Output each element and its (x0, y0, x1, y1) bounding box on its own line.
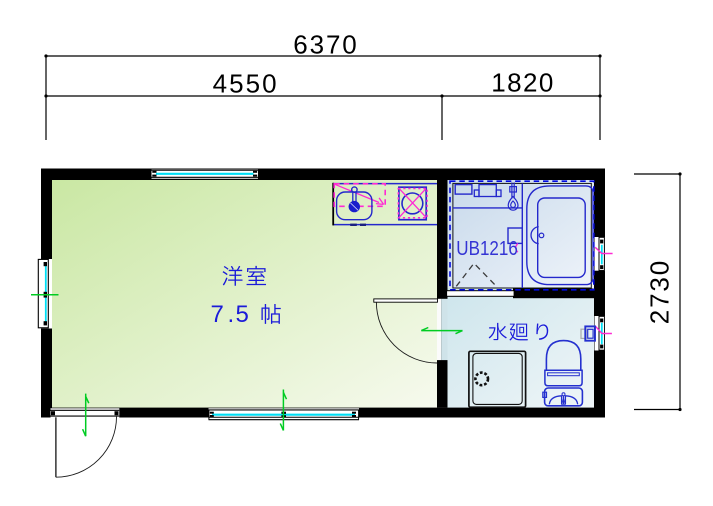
svg-text:.: . (228, 301, 235, 328)
svg-text:1820: 1820 (491, 68, 553, 98)
svg-text:5: 5 (236, 301, 249, 328)
svg-text:UB1216: UB1216 (456, 238, 518, 260)
svg-text:2730: 2730 (645, 261, 675, 325)
svg-text:6370: 6370 (293, 30, 357, 60)
svg-text:7: 7 (211, 301, 224, 328)
svg-text:4550: 4550 (213, 68, 277, 98)
